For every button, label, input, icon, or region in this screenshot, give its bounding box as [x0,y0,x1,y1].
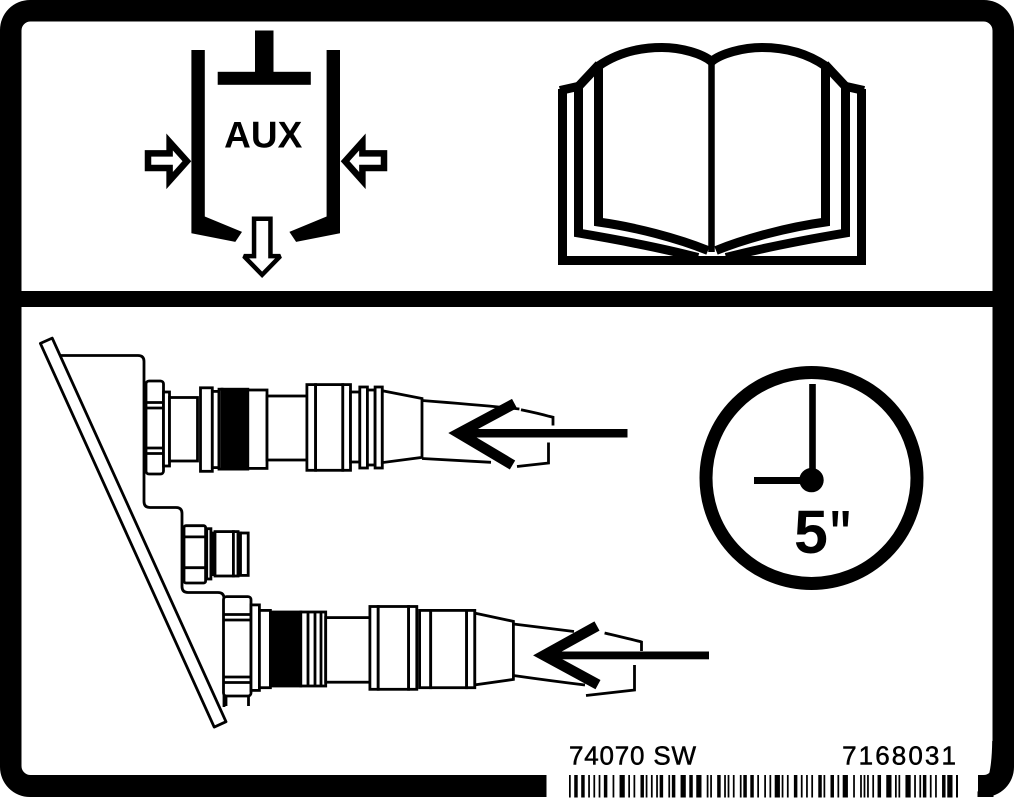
svg-text:AUX: AUX [224,115,302,156]
svg-text:7168031: 7168031 [842,741,958,771]
svg-text:74070 SW: 74070 SW [569,741,697,771]
svg-text:5: 5 [794,498,828,566]
